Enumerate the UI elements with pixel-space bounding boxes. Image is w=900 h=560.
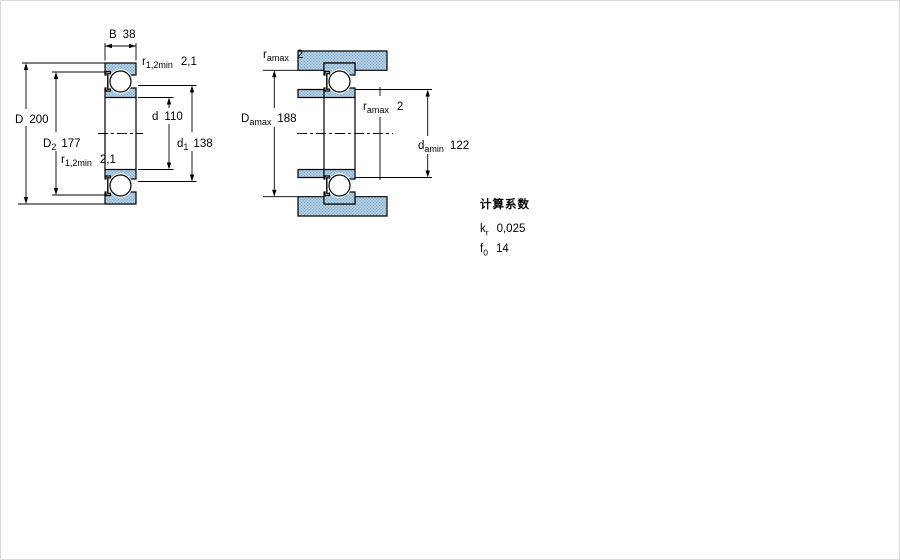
dim-r-top-label: r1,2min2,1 (142, 56, 197, 70)
dim-r-bottom-label: r1,2min2,1 (61, 154, 116, 168)
factor-kr-value: 0,025 (497, 223, 526, 235)
factor-f0-row: f014 (480, 242, 530, 259)
right-view-abutments (297, 51, 393, 216)
dim-Damax-label: Damax188 (241, 113, 297, 127)
shaft-shoulder-lower (298, 170, 324, 178)
factor-f0-value: 14 (496, 243, 509, 255)
dim-d1-label: d1138 (177, 138, 213, 152)
left-view-bearing-section (98, 63, 143, 204)
dim-d: d110 (138, 98, 183, 170)
dim-B-label: B38 (109, 29, 135, 41)
dim-Damax: Damax188 (241, 70, 298, 196)
dim-B: B38 (105, 29, 136, 61)
ball-bottom-right (329, 175, 350, 196)
drawing-page: B38 r1,2min2,1 D200 D2177 d110 d1138 r1,… (0, 0, 900, 560)
factor-kr-row: kr0,025 (480, 222, 530, 239)
calculation-factors-title: 计算系数 (480, 196, 530, 212)
dim-D: D200 (15, 63, 105, 204)
dim-damin-label: damin122 (418, 140, 469, 154)
dim-d1: d1138 (138, 86, 213, 182)
dim-ra-top-label: ramax2 (263, 49, 303, 63)
dim-ra-mid-label: ramax2 (363, 101, 403, 115)
ball-top-right (329, 71, 350, 92)
dim-D2: D2177 (43, 72, 105, 195)
shaft-shoulder-upper (298, 90, 324, 98)
technical-drawing-svg: B38 r1,2min2,1 D200 D2177 d110 d1138 r1,… (1, 1, 900, 560)
dim-damin: damin122 (355, 90, 469, 178)
ball-top (110, 71, 131, 92)
dim-D-label: D200 (15, 114, 49, 126)
dim-d-label: d110 (152, 111, 183, 123)
ball-bottom (110, 175, 131, 196)
dim-D2-label: D2177 (43, 138, 81, 152)
calculation-factors-block: 计算系数 kr0,025 f014 (480, 196, 530, 263)
